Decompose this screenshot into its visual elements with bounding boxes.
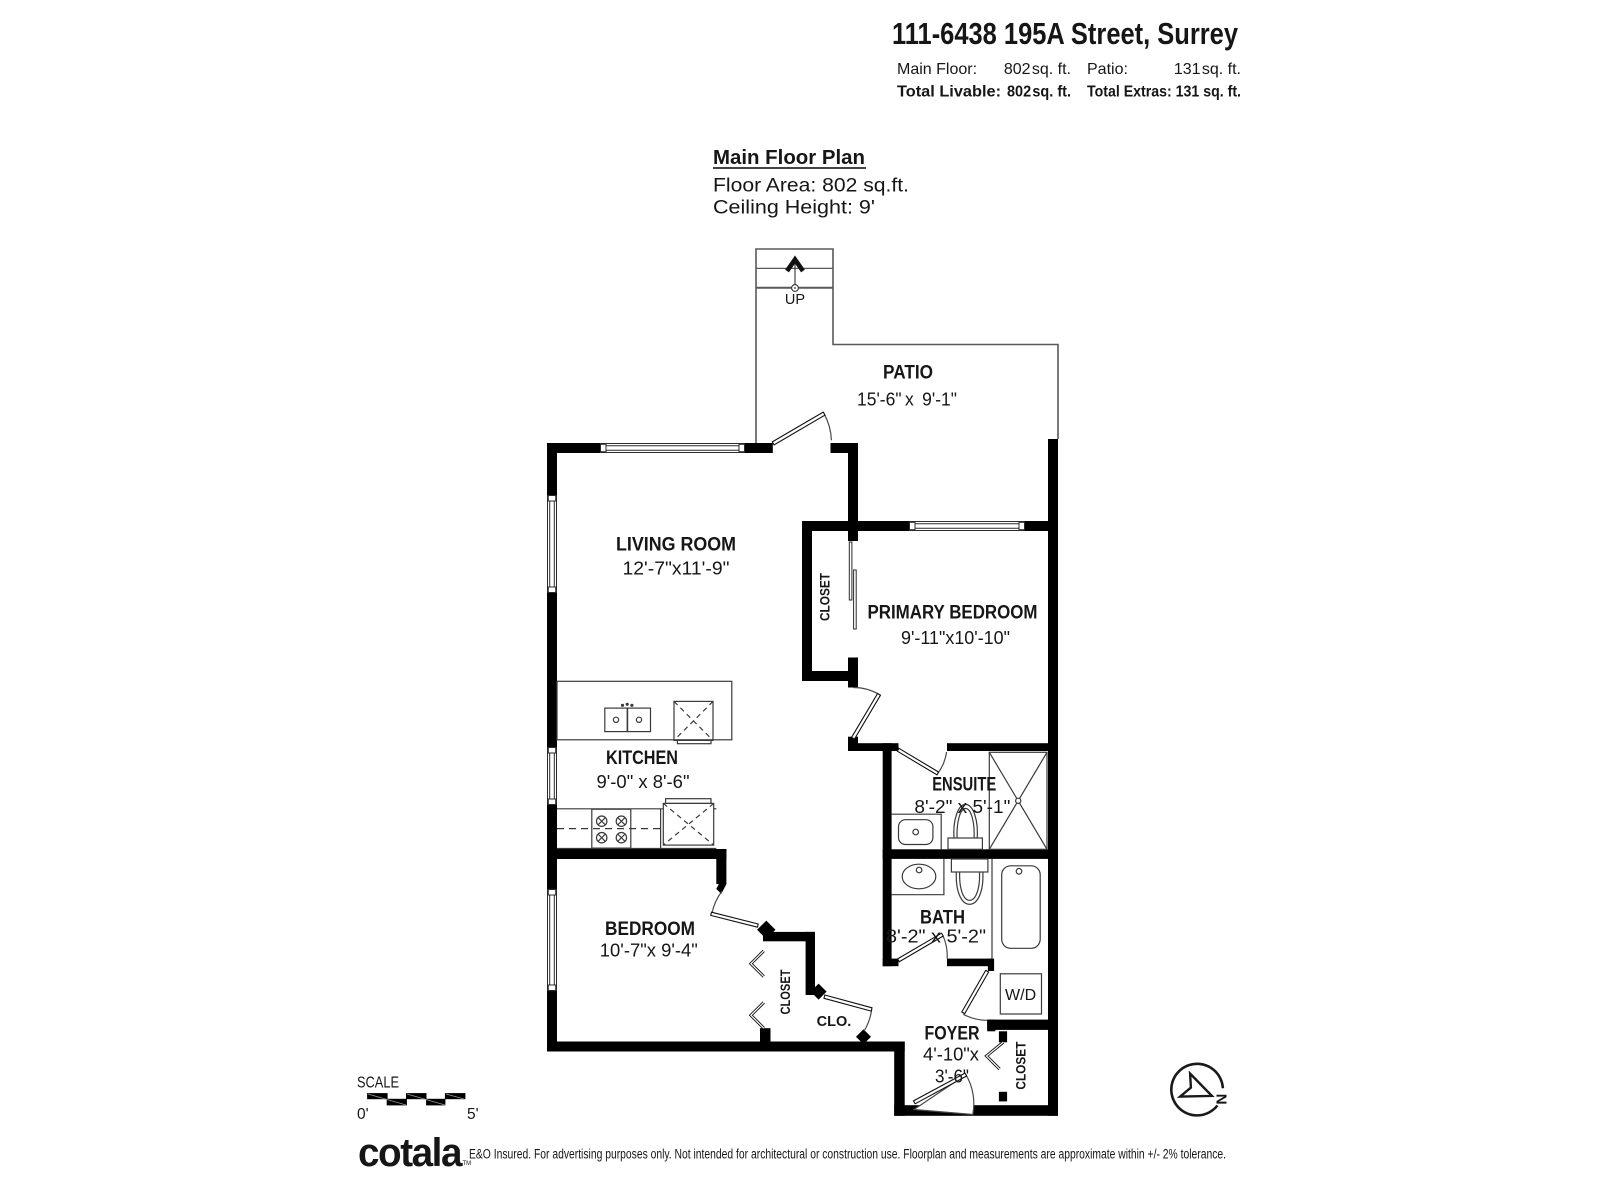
svg-text:E&O Insured. For advertising p: E&O Insured. For advertising purposes on…: [469, 1147, 1226, 1162]
svg-text:Main Floor Plan: Main Floor Plan: [713, 147, 865, 169]
svg-text:Total Extras: 131 sq. ft.: Total Extras: 131 sq. ft.: [1087, 84, 1241, 101]
svg-text:CLOSET: CLOSET: [1013, 1041, 1028, 1090]
svg-text:cotala: cotala: [358, 1131, 463, 1175]
svg-text:N: N: [1213, 1094, 1230, 1105]
svg-text:5': 5': [467, 1106, 479, 1123]
svg-text:W/D: W/D: [1005, 987, 1036, 1004]
svg-text:BEDROOM: BEDROOM: [605, 919, 695, 940]
svg-text:FOYER: FOYER: [925, 1024, 980, 1045]
svg-text:12'-7"x11'-9": 12'-7"x11'-9": [623, 559, 730, 579]
svg-text:LIVING ROOM: LIVING ROOM: [616, 535, 736, 556]
svg-text:15'-6" x 9'-1": 15'-6" x 9'-1": [857, 390, 957, 410]
svg-text:4'-10"x: 4'-10"x: [923, 1045, 979, 1065]
svg-text:PRIMARY BEDROOM: PRIMARY BEDROOM: [868, 603, 1038, 624]
svg-text:3'-6": 3'-6": [935, 1067, 969, 1087]
svg-text:UP: UP: [785, 292, 805, 308]
svg-text:802 sq. ft.: 802 sq. ft.: [1004, 61, 1071, 78]
svg-text:CLO.: CLO.: [817, 1014, 852, 1030]
svg-text:BATH: BATH: [920, 908, 965, 929]
svg-text:CLOSET: CLOSET: [818, 572, 833, 621]
svg-text:CLOSET: CLOSET: [778, 969, 793, 1015]
svg-text:9'-0" x 8'-6": 9'-0" x 8'-6": [597, 772, 690, 792]
svg-text:Ceiling Height: 9': Ceiling Height: 9': [713, 197, 875, 219]
svg-text:8'-2" x 5'-2": 8'-2" x 5'-2": [886, 927, 986, 947]
svg-text:8'-2" x 5'-1": 8'-2" x 5'-1": [914, 797, 1010, 817]
svg-text:Main Floor:: Main Floor:: [897, 61, 977, 78]
svg-text:131 sq. ft.: 131 sq. ft.: [1174, 61, 1241, 78]
svg-text:9'-11"x10'-10": 9'-11"x10'-10": [901, 628, 1010, 648]
svg-text:0': 0': [357, 1106, 369, 1123]
svg-text:111-6438 195A Street, Surrey: 111-6438 195A Street, Surrey: [892, 16, 1239, 51]
svg-text:Total Livable:: Total Livable:: [897, 84, 1001, 101]
svg-text:Patio:: Patio:: [1087, 61, 1128, 78]
svg-text:TM: TM: [463, 1161, 472, 1167]
svg-text:KITCHEN: KITCHEN: [606, 748, 678, 769]
svg-text:PATIO: PATIO: [883, 363, 933, 384]
svg-text:10'-7"x 9'-4": 10'-7"x 9'-4": [600, 941, 698, 961]
svg-text:ENSUITE: ENSUITE: [932, 775, 996, 796]
svg-text:802 sq. ft.: 802 sq. ft.: [1007, 84, 1071, 101]
svg-text:Floor Area: 802 sq.ft.: Floor Area: 802 sq.ft.: [713, 175, 909, 197]
svg-text:SCALE: SCALE: [357, 1075, 399, 1092]
